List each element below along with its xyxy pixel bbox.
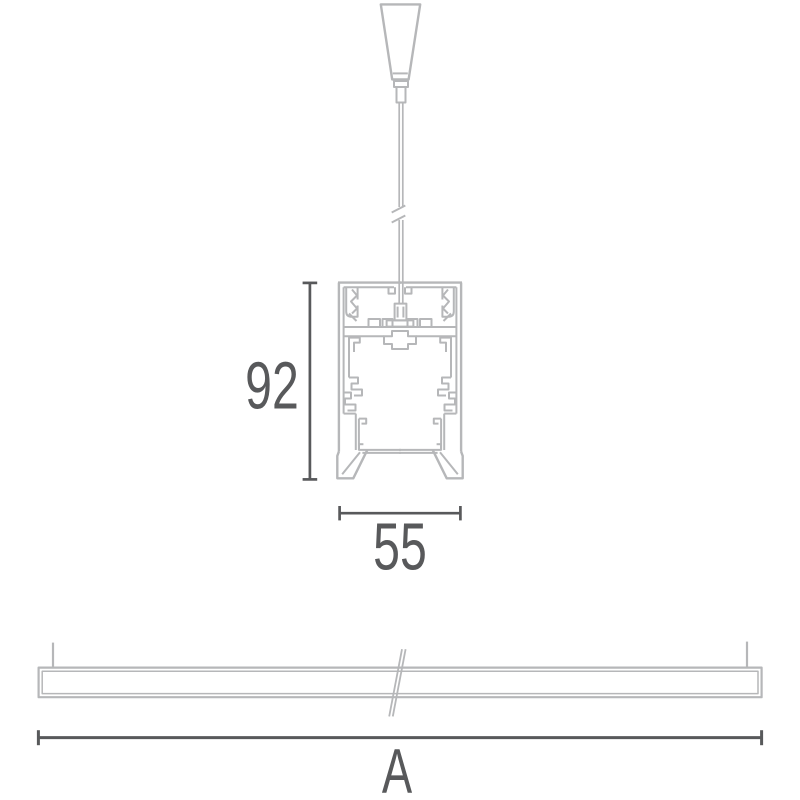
- corner-spring-clip: [351, 290, 357, 314]
- profile-cross-section: [337, 283, 462, 479]
- center-mounting-channel: [384, 331, 416, 349]
- height-dimension-line: [303, 283, 318, 480]
- luminaire-dimension-drawing: 92 55 A: [0, 0, 800, 800]
- width-dimension-label: 55: [373, 514, 427, 581]
- canopy-strain-relief: [397, 87, 406, 103]
- canopy-cone: [381, 4, 420, 79]
- spring-clip-lower: [344, 393, 356, 411]
- suspension-cable: [392, 103, 406, 304]
- cable-hanger-block: [395, 304, 407, 321]
- bar-break-symbol: [389, 649, 405, 716]
- fixture-side-view: [39, 642, 762, 717]
- diffuser-ledge: [359, 443, 401, 450]
- height-dimension-label: 92: [245, 353, 299, 420]
- profile-foot: [337, 450, 367, 478]
- profile-center-details: [384, 304, 416, 349]
- ceiling-canopy: [381, 4, 420, 102]
- hanger-base: [387, 320, 414, 326]
- length-dimension-label: A: [382, 741, 412, 800]
- cable-break-symbol: [392, 206, 406, 223]
- technical-drawing-canvas: [0, 0, 800, 800]
